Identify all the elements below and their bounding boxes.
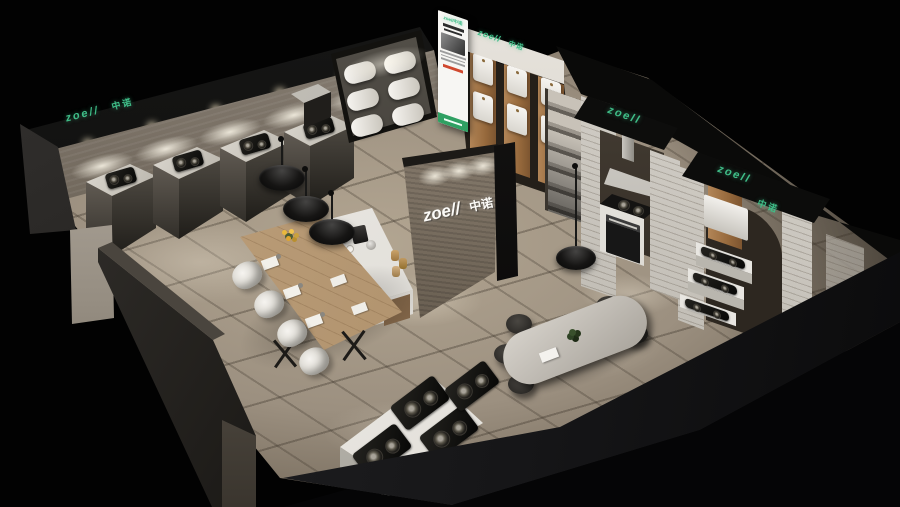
pendant-lamp <box>309 219 355 245</box>
teacup <box>276 254 281 259</box>
pendant-cord <box>575 168 577 252</box>
teacup <box>298 283 303 288</box>
pendant-canopy <box>572 163 578 169</box>
feature-wall-logo-cjk: 中诺 <box>468 195 494 214</box>
poster-brand-latin: zoell <box>443 15 453 23</box>
cooktop-display-stand <box>153 139 225 243</box>
pendant-lamp <box>283 196 329 222</box>
burner <box>618 200 630 211</box>
pendant-lamp <box>259 165 305 191</box>
promo-poster: zoell中诺 <box>438 10 468 132</box>
pendant-lamp <box>556 246 596 270</box>
poster-footer-bar <box>444 118 462 126</box>
showroom-render: zoe// 中诺 <box>0 0 900 507</box>
pendant-canopy <box>328 190 334 196</box>
flower-vase <box>280 228 298 242</box>
burner <box>633 206 644 216</box>
table-plant <box>566 326 582 340</box>
staircase <box>545 88 584 223</box>
kettle <box>366 240 376 250</box>
pendant-canopy <box>278 136 284 142</box>
poster-brand-cjk: 中诺 <box>454 18 463 26</box>
teacup <box>320 312 325 317</box>
pendant-canopy <box>302 166 308 172</box>
